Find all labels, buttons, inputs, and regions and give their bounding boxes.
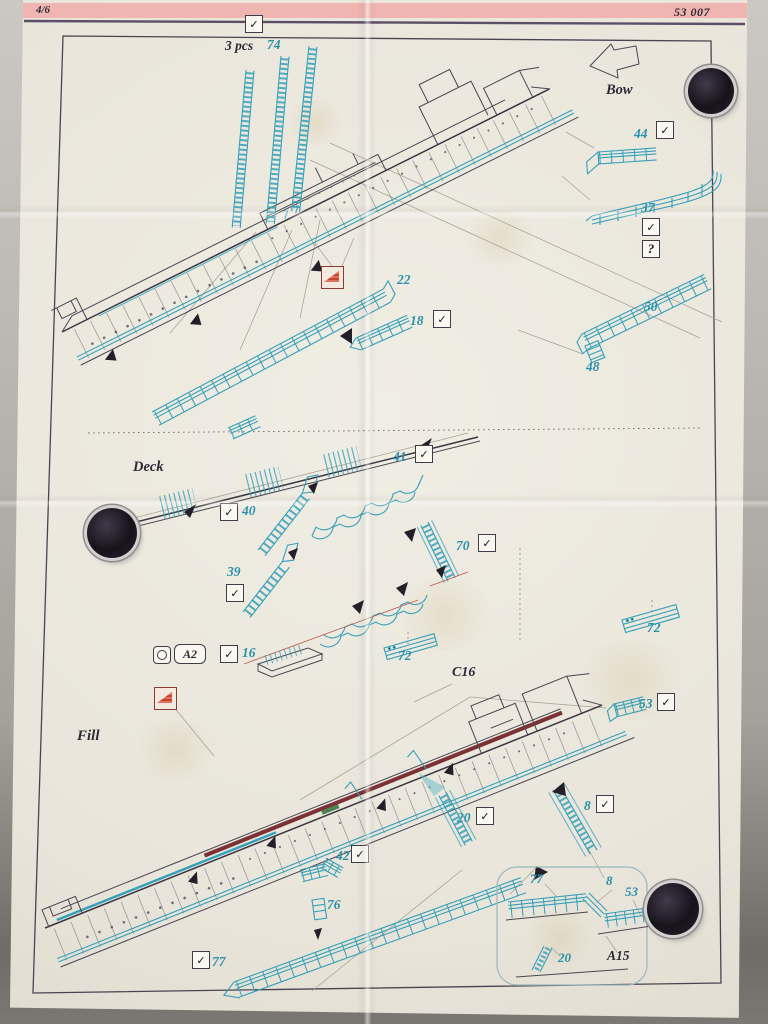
checkbox-74: ✓ [245,15,263,33]
part-44-label: 44 [634,127,648,141]
ladder-70-part [417,520,459,583]
horizontal-fold-crease [0,205,768,219]
part-39-label: 39 [227,565,241,579]
deck-label: Deck [133,460,164,475]
ladder-74-parts [232,46,317,228]
checkbox-41: ✓ [415,445,433,463]
inset-part-77-label: 77 [530,872,543,885]
part-72-left-label: 72 [398,649,412,663]
part-41-label: 41 [393,450,407,464]
checkbox-16: ✓ [220,645,238,663]
round-magnet-top-right [688,68,734,114]
part-53-label: 53 [639,697,653,711]
question-box-37: ? [642,240,660,258]
fill-label: Fill [77,729,100,744]
bow-direction-arrow-icon [590,44,639,78]
part-76-label: 76 [327,898,341,912]
inset-part-8-label: 8 [606,874,613,887]
bend-symbol-top-icon [321,266,344,289]
checkbox-37: ✓ [642,218,660,236]
ladder-8-part [549,784,602,857]
part-42-label: 42 [336,849,350,863]
checkbox-20: ✓ [476,807,494,825]
part-74-label: 74 [267,38,281,52]
checkbox-70: ✓ [478,534,496,552]
part-72-right-label: 72 [647,621,661,635]
bow-label: Bow [606,83,633,98]
product-code: 53 007 [674,6,710,18]
round-magnet-left [87,508,137,558]
quantity-label: 3 pcs [225,39,253,53]
page-number: 4/6 [36,5,50,16]
railing-42-part [300,864,328,882]
part-77-label: 77 [212,955,226,969]
railing-44-part [586,148,657,174]
vertical-fold-crease [356,0,376,1024]
part-16-label: 16 [242,646,256,660]
checkbox-8: ✓ [596,795,614,813]
inset-part-53-label: 53 [625,885,638,898]
part-20-label: 20 [457,811,471,825]
checkbox-53: ✓ [657,693,675,711]
part-48-label: 48 [586,360,600,374]
checkbox-18: ✓ [433,310,451,328]
round-magnet-bottom-right [647,883,699,935]
pe-fret-icon [153,646,171,664]
plate-76-part [312,898,327,919]
part-50-label: 50 [644,300,658,314]
part-18-label: 18 [410,314,424,328]
inset-part-20-label: 20 [558,951,571,964]
fret-a2-badge: A2 [174,644,206,664]
tray-16-part [258,648,322,677]
checkbox-39: ✓ [226,584,244,602]
ref-c16-label: C16 [452,666,475,680]
horizontal-fold-crease [0,494,768,508]
part-8-label: 8 [584,799,591,813]
inset-ref-a15-label: A15 [607,949,630,963]
photo-scene: 4/6 53 007 ✓ 3 pcs 74 Bow 44 ✓ 37 ✓ ? 22… [0,0,768,1024]
bend-symbol-bottom-icon [154,687,177,710]
part-22-label: 22 [397,273,411,287]
checkbox-44: ✓ [656,121,674,139]
part-70-label: 70 [456,539,470,553]
checkbox-77: ✓ [192,951,210,969]
